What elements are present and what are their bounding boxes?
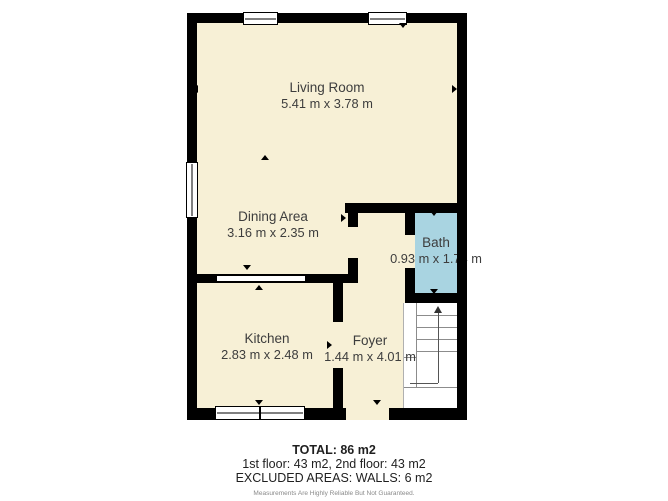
direction-marker (193, 85, 198, 93)
room-label-bath: Bath 0.93 m x 1.74 m (376, 235, 496, 266)
room-label-living-room: Living Room 5.41 m x 3.78 m (197, 80, 457, 111)
room-dimensions: 3.16 m x 2.35 m (197, 225, 349, 240)
window-top-left (243, 12, 278, 25)
stairs-up-arrow-icon (434, 306, 442, 313)
wall-dining-kitchen-right (305, 274, 358, 283)
total-area-text: TOTAL: 86 m2 (0, 443, 668, 457)
direction-marker (243, 265, 251, 270)
room-name: Bath (376, 235, 496, 251)
window-kitchen (215, 406, 305, 420)
wall-exterior-top (187, 13, 467, 23)
wall-kitchen-foyer-upper (333, 283, 343, 322)
wall-kitchen-foyer-lower (333, 368, 343, 408)
room-dimensions: 5.41 m x 3.78 m (197, 96, 457, 111)
wall-bath-left-upper (405, 203, 415, 235)
direction-marker (341, 214, 346, 222)
wall-exterior-right (457, 13, 467, 420)
window-pane-line (192, 164, 193, 216)
stair-tread (416, 315, 457, 316)
wall-dining-kitchen-left (197, 274, 217, 283)
front-door-opening (345, 408, 390, 420)
disclaimer-text: Measurements Are Highly Reliable But Not… (0, 490, 668, 498)
opening-dining-kitchen (217, 274, 305, 283)
room-label-dining-area: Dining Area 3.16 m x 2.35 m (197, 209, 349, 240)
stair-walkline (410, 383, 438, 384)
window-pane-line (370, 18, 405, 19)
excluded-areas-text: EXCLUDED AREAS: WALLS: 6 m2 (0, 471, 668, 485)
room-living-room-floor (197, 23, 457, 203)
direction-marker (452, 85, 457, 93)
floor-areas-text: 1st floor: 43 m2, 2nd floor: 43 m2 (0, 457, 668, 471)
window-left (186, 162, 198, 218)
direction-marker (255, 400, 263, 405)
wall-dining-foyer-upper (348, 213, 358, 227)
direction-marker (373, 400, 381, 405)
window-pane-line (245, 18, 276, 19)
plan-summary: TOTAL: 86 m2 1st floor: 43 m2, 2nd floor… (0, 443, 668, 498)
direction-marker (430, 211, 438, 216)
direction-marker (399, 23, 407, 28)
window-divider (259, 407, 261, 419)
room-name: Living Room (197, 80, 457, 96)
stair-tread (416, 327, 457, 328)
direction-marker (327, 341, 332, 349)
wall-bath-bottom (405, 293, 467, 303)
room-dimensions: 0.93 m x 1.74 m (376, 251, 496, 266)
stair-landing-line (404, 387, 458, 388)
direction-marker (255, 285, 263, 290)
direction-marker (261, 155, 269, 160)
stair-walkline (438, 313, 439, 383)
direction-marker (430, 289, 438, 294)
room-dimensions: 1.44 m x 4.01 m (309, 349, 431, 364)
floorplan-canvas: Living Room 5.41 m x 3.78 m Dining Area … (0, 0, 668, 501)
room-name: Dining Area (197, 209, 349, 225)
